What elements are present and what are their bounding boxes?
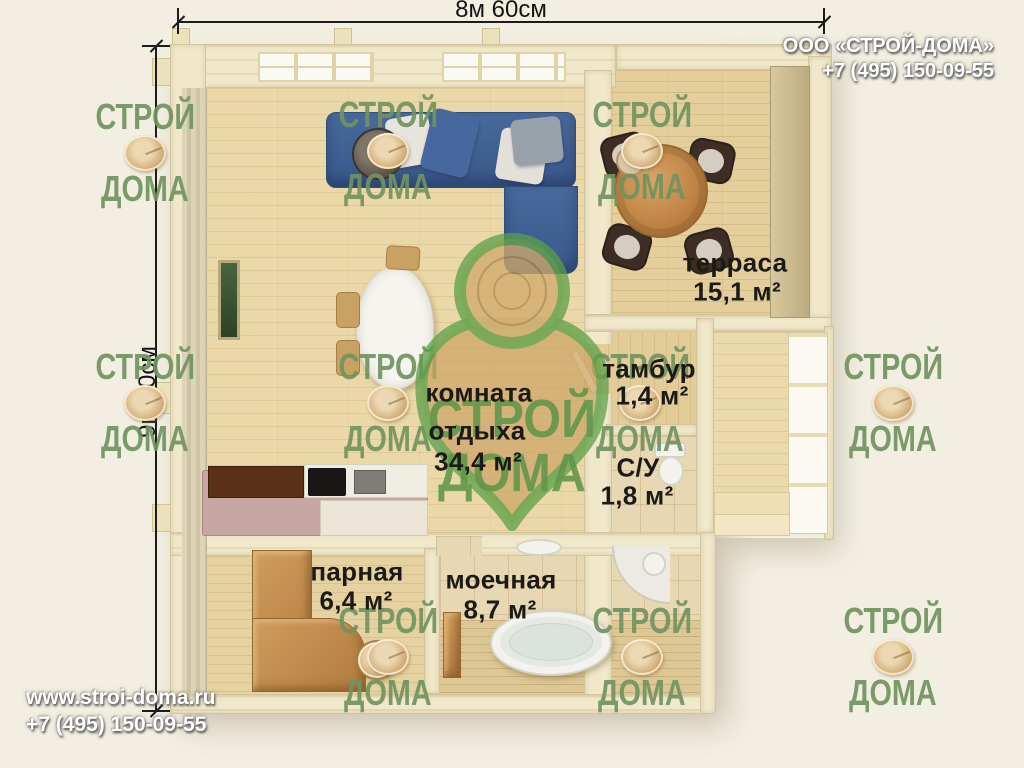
sofa-pillow-gray [510,116,565,167]
cooktop [308,468,346,496]
porch-step-upper [714,492,790,516]
log-slice-icon [872,385,914,421]
watermark-word1: СТРОЙ [843,604,943,638]
dining-chair [336,292,360,328]
company-name: ООО «СТРОЙ-ДОМА» [783,34,994,59]
steam-area: 6,4 м² [319,586,392,617]
height-dimension-label: 9м 10см [134,346,162,438]
watermark: СТРОЙ ДОМА [843,604,943,710]
extension-line [142,45,170,47]
left-wall-inner-face [182,88,207,694]
kitchen-island [320,500,428,536]
terrace-label: терраса [683,248,788,279]
bottom-wall [170,694,716,714]
window-right [442,52,566,82]
kitchen-sink [354,470,386,494]
right-wall-lower [700,532,716,714]
wash-bench [443,612,461,678]
sauna-bench-horizontal [252,618,366,692]
website-phone: +7 (495) 150-09-55 [26,711,215,738]
side-table [352,128,404,180]
window-left [258,52,374,82]
extension-line [823,8,825,34]
floor-plan-render: СТРОЙ ДОМА СТРОЙ ДОМА СТРОЙ ДОМА СТРОЙ Д… [0,0,1024,768]
hall-left-wall [696,318,714,534]
tambour-wc-wall [606,424,698,436]
company-contact-block: ООО «СТРОЙ-ДОМА» +7 (495) 150-09-55 [783,34,994,84]
tambour-area: 1,4 м² [615,381,688,412]
extension-line [177,8,179,34]
watermark-word2: ДОМА [849,676,937,710]
chair-cushion [611,232,643,262]
sauna-tub [356,640,398,680]
terrace-pitcher [616,146,646,176]
porch-window-band [788,332,828,534]
dining-table [356,266,434,390]
shower-head [642,552,666,576]
door-opening-wash [436,536,482,556]
wash-sink [516,539,562,556]
lounge-area: 34,4 м² [434,447,522,478]
kitchen-counter-dark [208,466,304,498]
company-phone: +7 (495) 150-09-55 [783,59,994,84]
watermark: СТРОЙ ДОМА [843,350,943,456]
wc-area: 1,8 м² [600,481,673,512]
dining-chair [385,245,420,271]
terrace-area: 15,1 м² [693,277,781,308]
width-dimension-label: 8м 60см [455,0,547,24]
bathtub-basin [509,623,593,661]
wash-area: 8,7 м² [463,595,536,626]
watermark-word1: СТРОЙ [843,350,943,384]
log-slice-icon [124,135,166,171]
lounge-label-line2: отдыха [428,416,525,447]
sofa-chaise [504,186,578,274]
lounge-label-line1: комната [426,378,533,409]
steam-wash-wall [424,548,440,694]
website-contact-block: www.stroi-doma.ru +7 (495) 150-09-55 [26,684,215,738]
steam-label: парная [310,557,403,588]
log-slice-icon [872,639,914,675]
wall-picture [218,260,240,340]
wash-label: моечная [445,565,556,596]
dining-chair [336,340,360,376]
watermark-word2: ДОМА [849,422,937,456]
terrace-outer-frame [808,56,832,318]
porch-step-lower [714,514,790,536]
website-url: www.stroi-doma.ru [26,684,215,711]
wc-label: С/У [616,453,659,484]
